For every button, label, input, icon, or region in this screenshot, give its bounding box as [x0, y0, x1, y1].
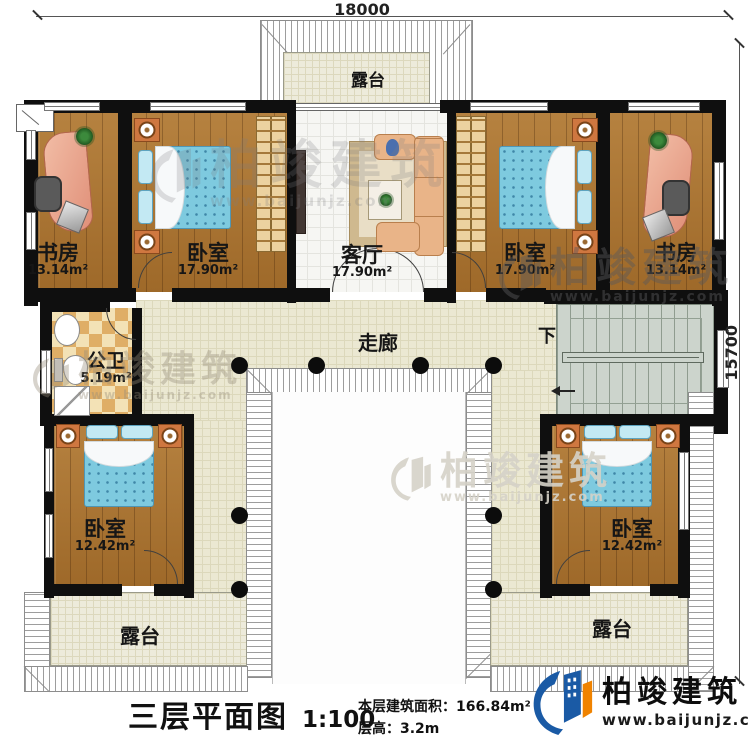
wardrobe: [456, 116, 486, 252]
window: [150, 102, 246, 111]
double-bed: [498, 144, 594, 230]
column: [231, 507, 248, 524]
double-bed: [82, 422, 156, 508]
lamp: [560, 428, 577, 445]
person: [386, 139, 399, 156]
nightstand: [56, 424, 80, 448]
room-label-bathroom: 公卫 5.19m²: [80, 352, 131, 386]
wall: [154, 584, 194, 596]
floor-area-value: 166.84m²: [456, 699, 531, 715]
wall: [287, 113, 296, 303]
column: [231, 581, 248, 598]
room-area: 13.14m²: [646, 264, 706, 278]
pillow: [121, 425, 153, 439]
room-label-study-right: 书房 13.14m²: [646, 242, 706, 278]
courtyard-left-hatch: [246, 392, 272, 678]
room-name: 卧室: [75, 518, 135, 540]
terrace-bottom-hatch: [24, 666, 248, 692]
nightstand: [158, 424, 182, 448]
window: [26, 130, 36, 160]
lamp: [139, 122, 156, 139]
shower: [54, 386, 90, 416]
terrace-bottom-right-label: 露台: [592, 613, 632, 642]
column: [231, 357, 248, 374]
wall: [44, 584, 122, 596]
floor-height-value: 3.2m: [400, 721, 439, 737]
double-bed: [580, 422, 654, 508]
nightstand: [134, 230, 160, 254]
stairs-down-label: 下: [538, 322, 556, 348]
wall: [172, 288, 330, 302]
room-label-bedroom-bottom-right: 卧室 12.42m²: [602, 518, 662, 554]
floor-height-row: 层高：3.2m: [358, 718, 439, 738]
window: [470, 102, 548, 111]
room-area: 17.90m²: [495, 264, 555, 278]
column: [485, 507, 502, 524]
floor-area-label: 本层建筑面积：: [358, 699, 456, 715]
room-label-living-room: 客厅 17.90m²: [332, 244, 392, 280]
window: [45, 448, 53, 492]
brand-logo-icon: [532, 668, 594, 738]
room-area: 17.90m²: [178, 264, 238, 278]
wall: [650, 584, 690, 596]
pillow: [577, 190, 592, 224]
courtyard-void: [272, 392, 466, 684]
room-area: 13.14m²: [28, 264, 88, 278]
dimension-height: 15700: [722, 325, 741, 381]
wall: [44, 414, 54, 598]
room-name: 卧室: [178, 242, 238, 264]
drawing-title-block: 三层平面图 1:100: [126, 692, 379, 741]
room-name: 书房: [646, 242, 706, 264]
column: [308, 357, 325, 374]
dimension-width: 18000: [334, 0, 390, 19]
tv-cabinet: [296, 150, 306, 234]
pillow: [577, 150, 592, 184]
window: [714, 162, 724, 240]
floor-area-row: 本层建筑面积：166.84m²: [358, 696, 531, 716]
stair-arrow-head: [551, 386, 560, 396]
stair-handrail: [562, 352, 704, 363]
window: [679, 452, 689, 530]
brand-website: www.baijunjz.com: [602, 711, 750, 729]
nightstand: [572, 118, 598, 142]
plant: [650, 132, 667, 149]
lamp: [60, 428, 77, 445]
lamp: [577, 122, 594, 139]
right-side-hatch: [688, 392, 714, 692]
lamp: [139, 234, 156, 251]
column: [485, 581, 502, 598]
pillow: [619, 425, 651, 439]
room-area: 12.42m²: [602, 540, 662, 554]
courtyard-right-hatch: [466, 392, 492, 678]
wall: [118, 113, 132, 290]
corridor-floor: [492, 370, 556, 420]
stair-direction-arrow: [560, 390, 575, 392]
corridor-label: 走廊: [358, 327, 398, 356]
lamp: [577, 234, 594, 251]
window: [45, 514, 53, 558]
plant: [380, 194, 392, 206]
room-label-study-left: 书房 13.14m²: [28, 242, 88, 278]
plant: [76, 128, 93, 145]
window: [41, 350, 51, 394]
room-area: 5.19m²: [80, 372, 131, 386]
window: [628, 102, 700, 111]
room-name: 卧室: [495, 242, 555, 264]
column: [485, 357, 502, 374]
bed-sheet: [545, 146, 575, 229]
sink: [54, 314, 80, 346]
room-name: 卧室: [602, 518, 662, 540]
brand-logo: 柏竣建筑 www.baijunjz.com: [532, 668, 750, 738]
double-bed: [136, 144, 232, 230]
floor-height-label: 层高：: [358, 721, 400, 737]
room-name: 书房: [28, 242, 88, 264]
room-label-bedroom-top-left: 卧室 17.90m²: [178, 242, 238, 278]
drawing-title: 三层平面图: [128, 692, 288, 736]
terrace-bottom-left-label: 露台: [120, 620, 160, 649]
courtyard-top-hatch: [246, 368, 492, 394]
nightstand: [656, 424, 680, 448]
wall: [596, 113, 610, 290]
dimension-tick: [723, 10, 734, 21]
terrace-glass-door: [296, 103, 440, 111]
column: [412, 357, 429, 374]
office-chair: [34, 176, 62, 212]
toilet-tank: [54, 358, 63, 382]
lamp: [162, 428, 179, 445]
wall: [184, 414, 194, 598]
nightstand: [556, 424, 580, 448]
wall: [540, 414, 552, 598]
wall: [424, 288, 452, 302]
nightstand: [134, 118, 160, 142]
room-name: 客厅: [332, 244, 392, 266]
pillow: [138, 150, 153, 184]
lamp: [660, 428, 677, 445]
wall: [540, 584, 590, 596]
terrace-top-label: 露台: [351, 66, 385, 91]
pillow: [584, 425, 616, 439]
room-label-bedroom-top-right: 卧室 17.90m²: [495, 242, 555, 278]
corridor-floor: [136, 370, 246, 420]
corridor-floor: [492, 420, 544, 596]
pillow: [86, 425, 118, 439]
window: [44, 102, 100, 111]
terrace-bottom-right-floor: [490, 592, 688, 666]
wall: [24, 288, 136, 302]
floor-plan-canvas: 书房 13.14m² 卧室 17.90m² 客厅 17.90m² 卧室 17.9…: [0, 0, 750, 741]
wardrobe: [256, 116, 286, 252]
nightstand: [572, 230, 598, 254]
room-area: 12.42m²: [75, 540, 135, 554]
brand-company: 柏竣建筑: [602, 678, 750, 708]
dimension-tick: [32, 10, 43, 21]
wall: [486, 288, 546, 302]
room-name: 公卫: [80, 352, 131, 372]
room-label-bedroom-bottom-left: 卧室 12.42m²: [75, 518, 135, 554]
room-area: 17.90m²: [332, 266, 392, 280]
wall: [544, 290, 728, 304]
pillow: [138, 190, 153, 224]
